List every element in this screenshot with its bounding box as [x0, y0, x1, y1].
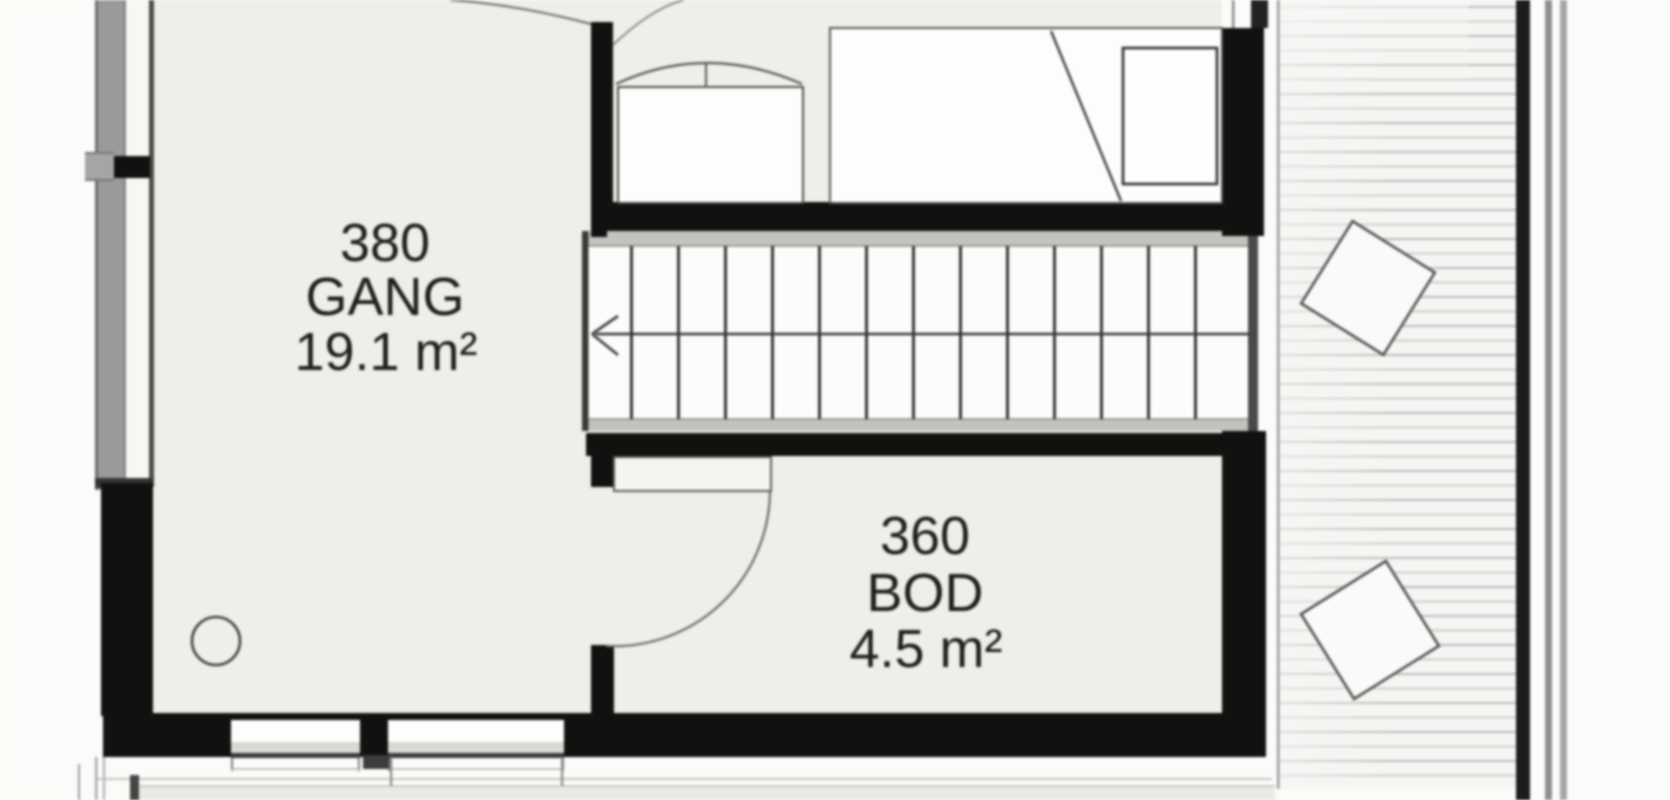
svg-text:GANG: GANG — [305, 267, 464, 327]
svg-text:4.5 m²: 4.5 m² — [849, 619, 1002, 679]
svg-text:19.1 m²: 19.1 m² — [294, 322, 477, 382]
svg-text:BOD: BOD — [866, 563, 983, 623]
svg-text:380: 380 — [340, 213, 430, 273]
svg-text:360: 360 — [880, 506, 970, 566]
